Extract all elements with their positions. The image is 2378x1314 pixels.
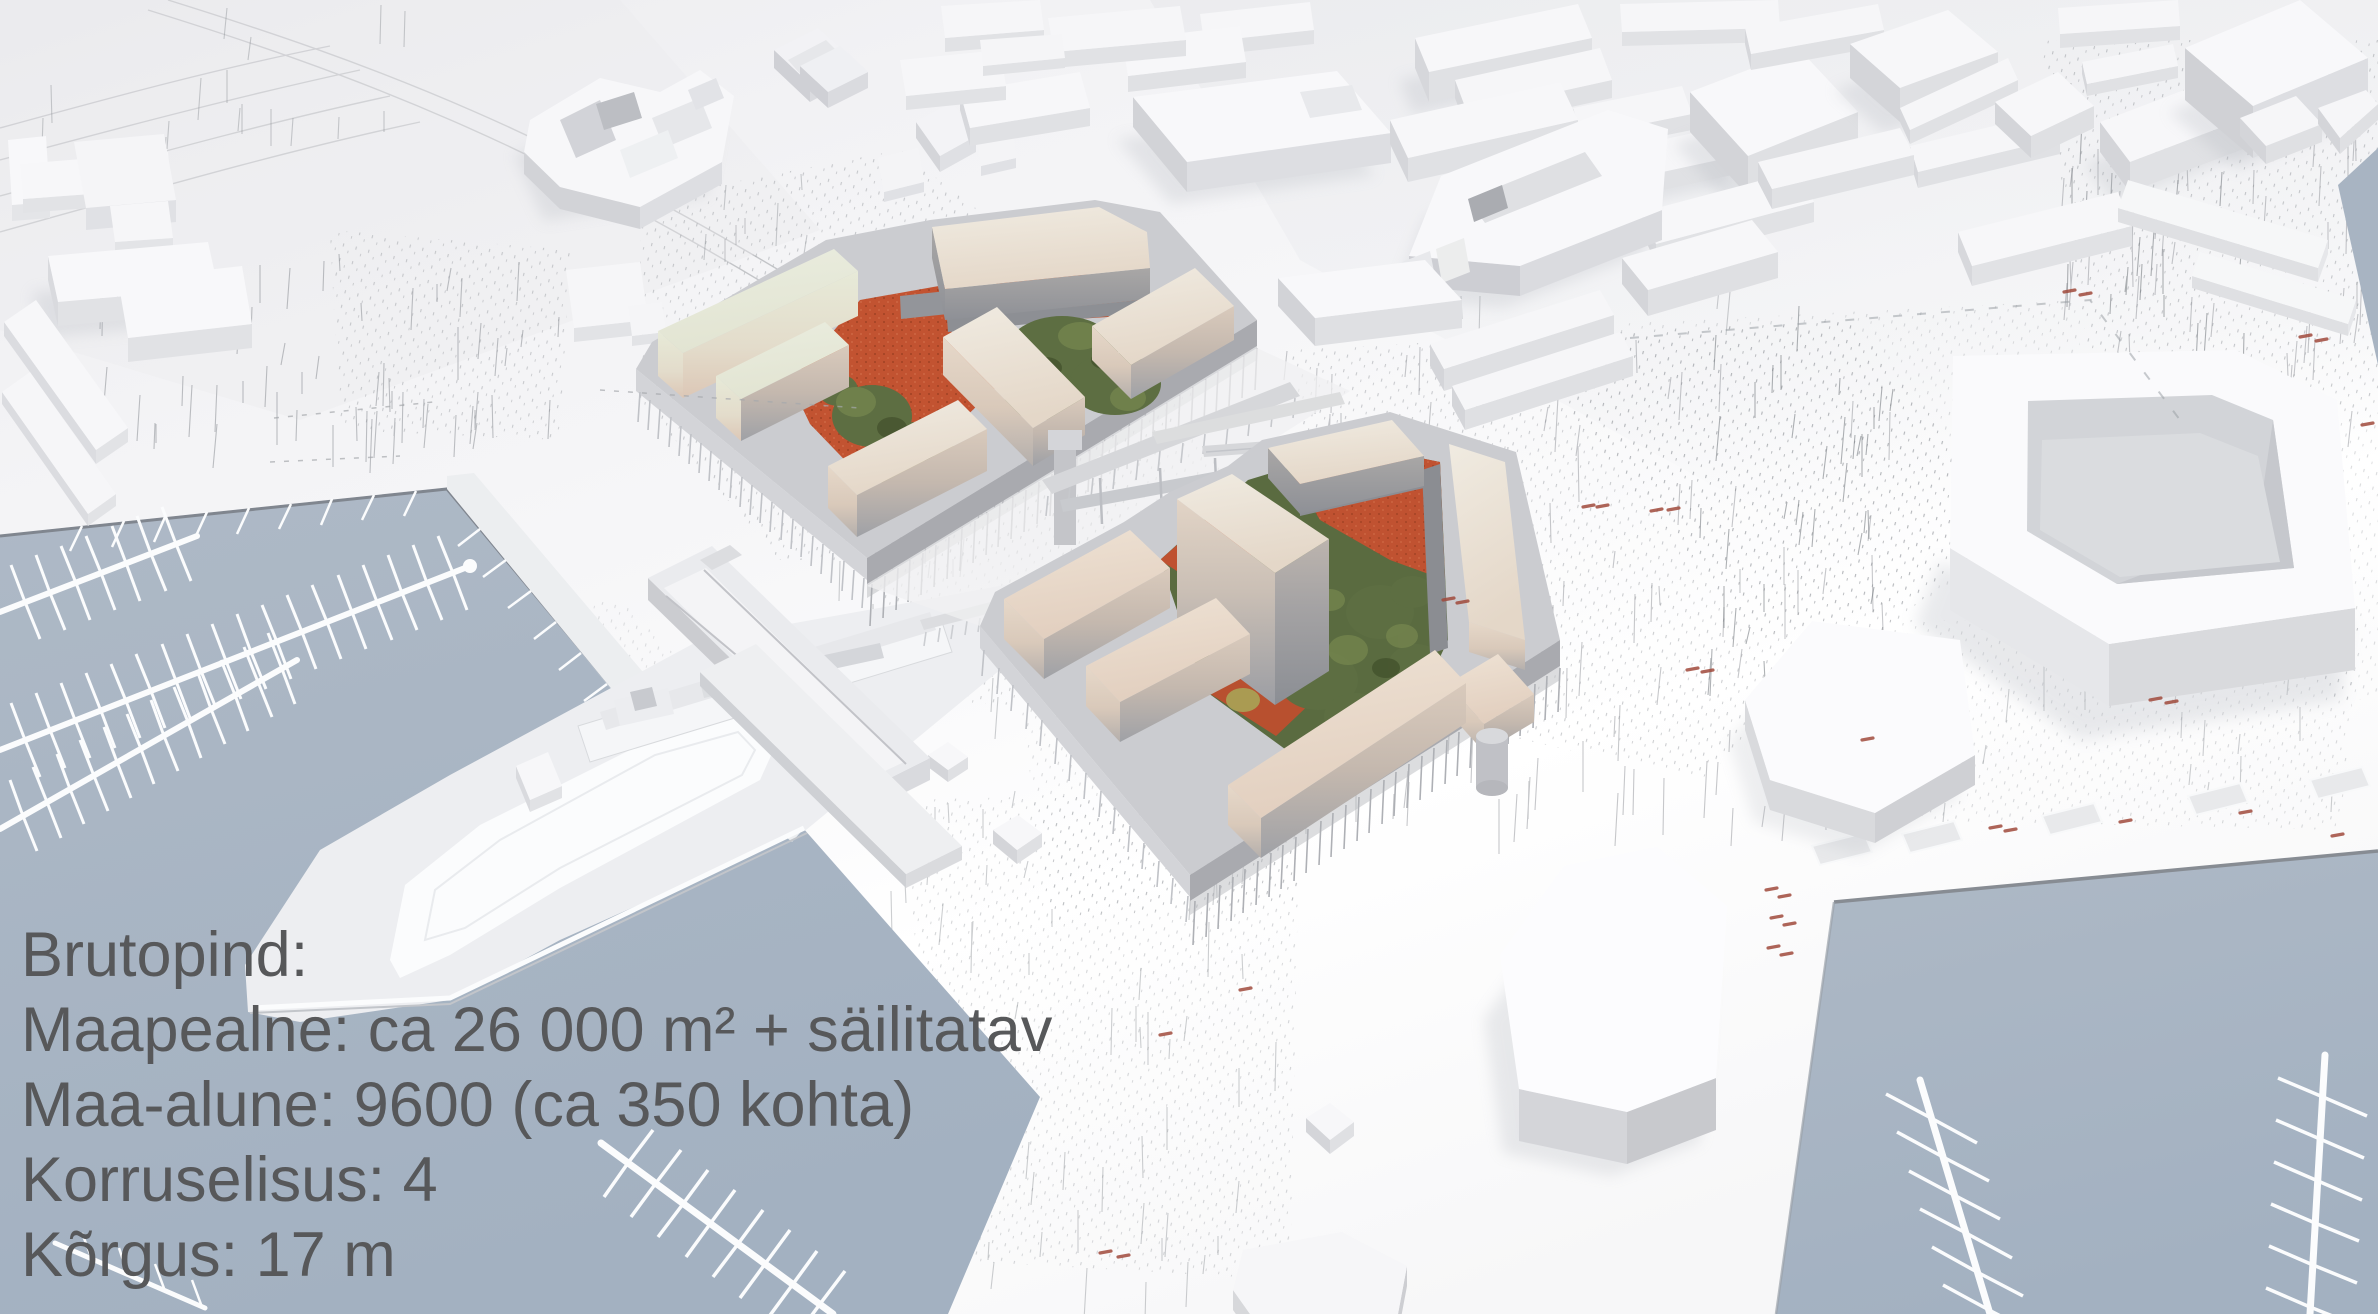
svg-text:Kõrgus: 17 m: Kõrgus: 17 m xyxy=(21,1220,396,1290)
svg-text:Maa-alune: 9600 (ca 350 kohta): Maa-alune: 9600 (ca 350 kohta) xyxy=(21,1070,914,1140)
svg-text:Korruselisus: 4: Korruselisus: 4 xyxy=(21,1145,438,1215)
svg-text:Maapealne: ca 26 000 m² + säil: Maapealne: ca 26 000 m² + säilitatav xyxy=(21,995,1053,1065)
svg-text:Brutopind:: Brutopind: xyxy=(21,920,308,990)
